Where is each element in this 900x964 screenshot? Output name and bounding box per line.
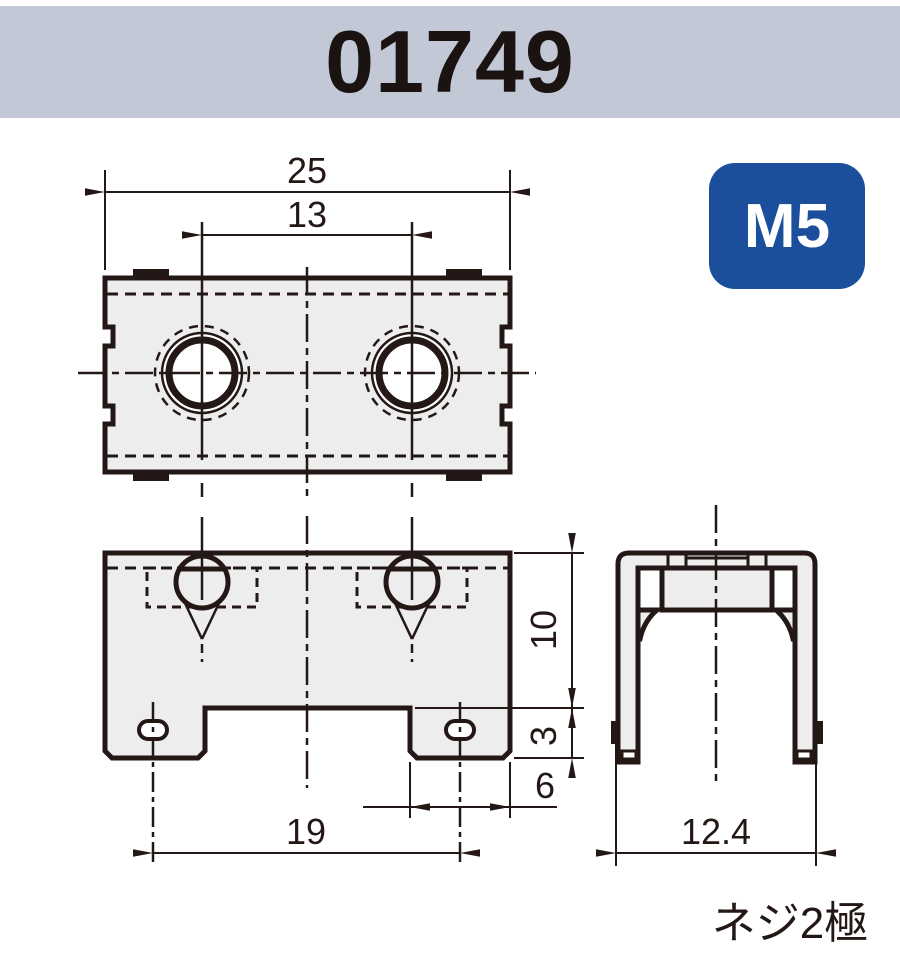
dim-lead-pitch: 19 xyxy=(153,811,460,853)
foot-slot-left xyxy=(622,751,636,759)
front-view: 10 3 6 19 xyxy=(105,516,584,866)
tab-bottom-left xyxy=(133,472,169,481)
side-view: 12.4 xyxy=(611,505,823,866)
side-tab-left xyxy=(611,721,619,744)
dim-label-body-height: 10 xyxy=(523,610,564,650)
top-view: 25 13 xyxy=(78,150,536,497)
tab-bottom-right xyxy=(446,472,482,481)
dim-hole-pitch: 13 xyxy=(202,194,412,235)
dim-label-side-width: 12.4 xyxy=(681,811,751,852)
drawing-sheet: 01749 M5 xyxy=(0,0,900,964)
dim-label-hole-pitch: 13 xyxy=(287,194,327,235)
dim-label-total-width: 25 xyxy=(287,150,327,191)
foot-slot-right xyxy=(797,751,811,759)
dim-label-foot-width: 6 xyxy=(535,765,555,806)
flare-right xyxy=(776,610,795,639)
side-tab-right xyxy=(815,721,823,744)
dim-foot-height: 3 xyxy=(514,708,584,758)
dim-label-lead-pitch: 19 xyxy=(286,811,326,852)
technical-drawing: 25 13 xyxy=(0,0,900,964)
tab-top-left xyxy=(133,269,169,278)
flare-left xyxy=(638,610,657,639)
pole-count-caption: ネジ2極 xyxy=(712,899,868,948)
tab-top-right xyxy=(446,269,482,278)
dim-label-foot-height: 3 xyxy=(523,726,564,746)
